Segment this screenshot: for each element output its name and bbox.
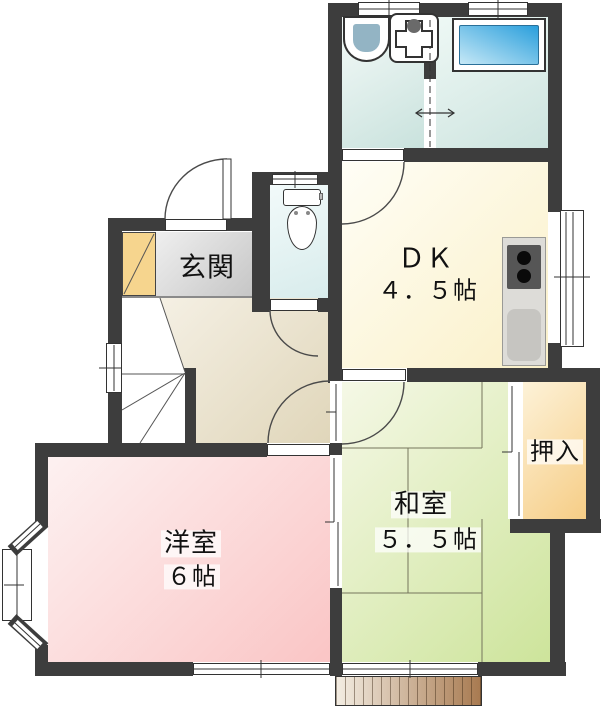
wall-segment [407, 368, 600, 382]
window-washitsu-bottom [342, 663, 478, 675]
kitchen-sink-icon [507, 309, 541, 361]
hallway-washitsu-doorway [330, 381, 342, 443]
entrance-door-leaf [223, 159, 231, 219]
wall-segment [404, 148, 548, 162]
wall-segment [328, 3, 342, 162]
wall-segment [330, 588, 342, 662]
wood-deck [335, 676, 482, 706]
wall-segment [227, 218, 255, 231]
wall-segment [328, 160, 342, 383]
yoshitsu-label: 洋室 [161, 530, 221, 557]
yoshitsu-size-label: ６帖 [164, 564, 220, 589]
washbasin-bowl [353, 24, 380, 52]
toilet-knob [319, 193, 323, 200]
window-hallway-left [106, 343, 122, 393]
laundry-pan-icon [389, 13, 439, 63]
toilet-bolt [294, 211, 298, 215]
bay-window-main [2, 549, 32, 621]
room-hallway [122, 298, 330, 443]
dk-washitsu-door [342, 369, 406, 381]
washitsu-size-label: ５．５帖 [375, 527, 481, 552]
toilet-bolt [306, 211, 310, 215]
window-yoshitsu-bottom [193, 663, 330, 675]
wall-segment [35, 443, 48, 527]
bath-folding-door [424, 79, 436, 148]
entrance-door-arc [165, 159, 227, 219]
window-toilet [272, 174, 318, 185]
washitsu-label: 和室 [391, 491, 451, 518]
dk-size-label: ４．５帖 [378, 271, 478, 306]
wall-segment [550, 530, 565, 676]
toilet-tank [283, 189, 321, 206]
stove-burner [517, 269, 531, 283]
sliding-door-oshiire [508, 382, 523, 519]
wall-segment [330, 662, 342, 676]
room-yoshitsu [48, 455, 330, 662]
window-bath-top [468, 2, 528, 16]
shoe-cabinet [122, 232, 156, 296]
wall-segment [478, 662, 566, 676]
washroom-dk-door [342, 149, 404, 161]
wall-segment [548, 3, 562, 212]
wall-segment [252, 172, 270, 312]
wall-segment [35, 443, 267, 457]
stove-burner [517, 251, 531, 265]
bathtub-water [459, 25, 539, 65]
toilet-door [270, 299, 318, 311]
wall-stairs-stub [183, 368, 196, 443]
wall-segment [35, 645, 48, 662]
window-dk-right [560, 210, 584, 347]
oshiire-label: 押入 [527, 439, 583, 464]
sliding-door-yoshitsu-washitsu [330, 455, 342, 588]
wall-segment [586, 368, 600, 533]
floorplan: 玄関 ＤＫ ４．５帖 和室 ５．５帖 押入 洋室 ６帖 [0, 0, 601, 708]
bay-wall-opening [35, 527, 48, 645]
genkan-label: 玄関 [179, 246, 235, 285]
genkan-step-edge [122, 296, 252, 298]
entrance-door [165, 219, 227, 231]
deck-planks [336, 677, 481, 705]
hallway-yoshitsu-door [267, 444, 330, 456]
wall-segment [35, 662, 193, 676]
wall-segment [108, 218, 122, 345]
